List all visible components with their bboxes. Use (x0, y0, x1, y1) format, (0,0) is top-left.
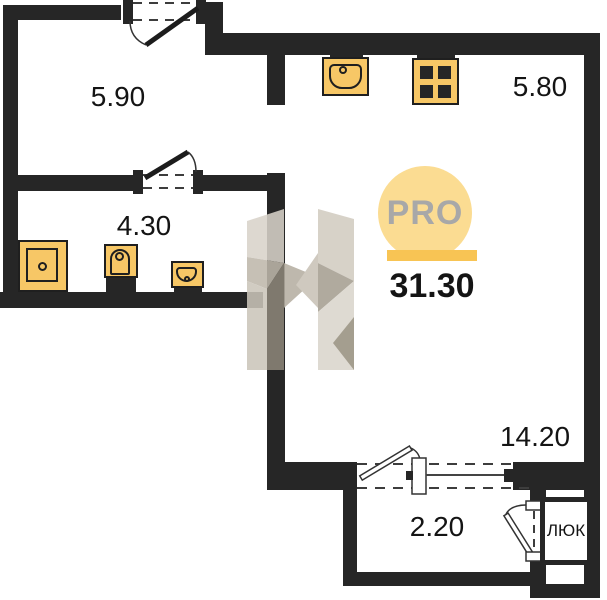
bathroom-sink-icon (171, 261, 204, 288)
room-label-kitchen: 5.80 (513, 73, 568, 101)
room-label-balcony: 2.20 (410, 513, 465, 541)
room-label-living: 14.20 (500, 423, 570, 451)
total-area-label: 31.30 (389, 269, 474, 303)
room-label-hallway: 5.90 (91, 83, 146, 111)
hatch-box: ЛЮК (540, 497, 592, 565)
bathroom-door (133, 152, 203, 194)
room-label-bathroom: 4.30 (117, 212, 172, 240)
pro-logo-badge: PRO (378, 166, 472, 260)
floor-plan: ЛЮК 5.90 4.30 5.80 31.30 14.20 2.20 PRO (0, 0, 607, 600)
balcony-door-window (357, 446, 530, 494)
hatch-door (504, 501, 544, 561)
door-frame-post (412, 458, 426, 494)
hatch-door-leaf (504, 513, 534, 557)
kitchen-sink-icon (322, 57, 369, 96)
shower-tray-icon (18, 240, 68, 292)
developer-watermark-icon (247, 209, 354, 370)
stove-icon (412, 58, 459, 105)
entry-door (123, 0, 206, 45)
toilet-icon (104, 244, 138, 278)
hatch-label: ЛЮК (547, 521, 585, 541)
balcony-door-leaf (360, 446, 412, 480)
pro-logo-text: PRO (387, 194, 464, 233)
pro-logo-underline (387, 250, 477, 261)
